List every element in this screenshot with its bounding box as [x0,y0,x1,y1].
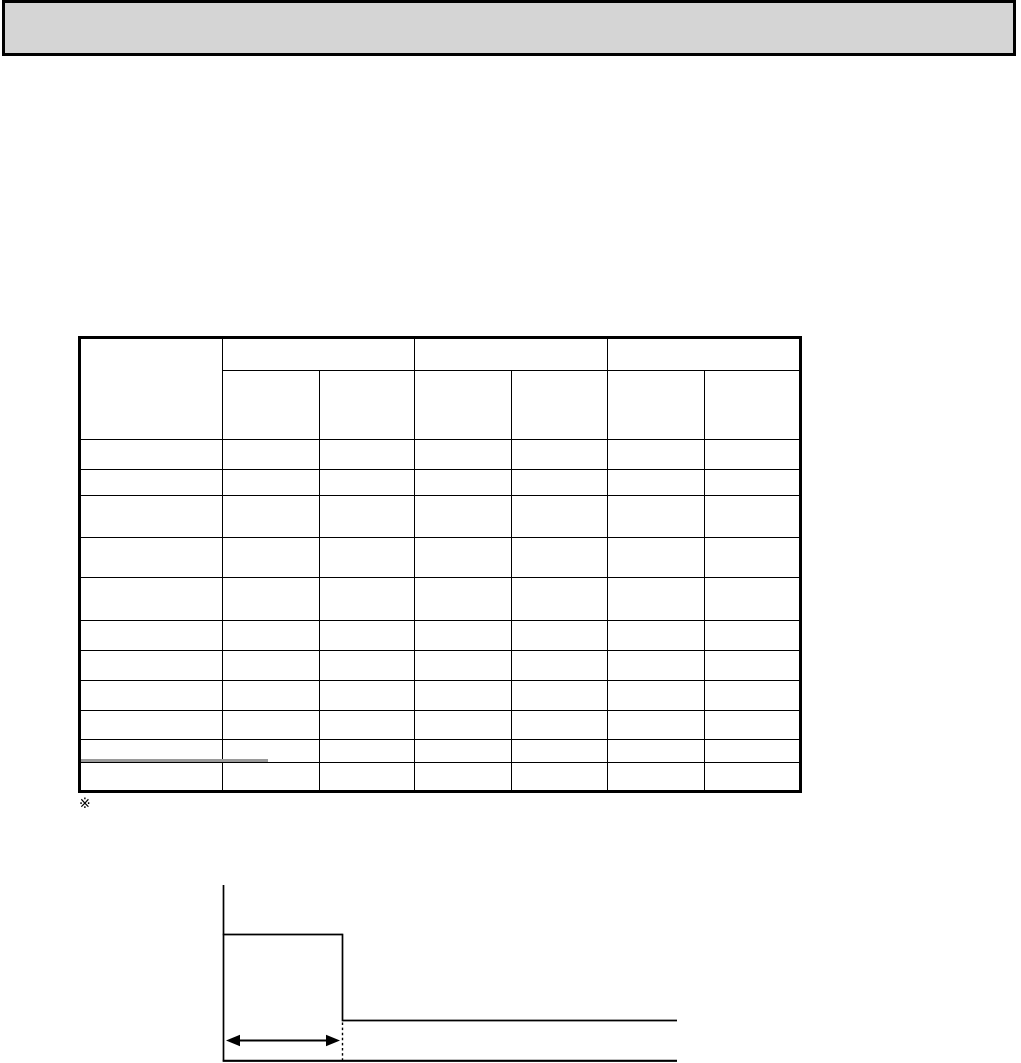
table-cell [80,711,223,740]
table-cell [320,651,415,681]
table-cell [80,496,223,538]
table-cell [80,763,223,792]
table-cell [705,711,801,740]
table-row [80,621,801,651]
table-cell [320,711,415,740]
table-row [80,440,801,470]
table-cell [608,538,705,578]
column-group-header [415,338,608,371]
table-cell [608,578,705,621]
table-cell [223,621,320,651]
table-cell [512,470,608,496]
table-cell [320,621,415,651]
table-cell [415,651,512,681]
column-subheader [415,371,512,440]
table-cell [223,470,320,496]
table-cell [415,470,512,496]
table-cell [512,496,608,538]
table-cell [705,740,801,763]
table-cell [415,621,512,651]
table-cell [223,578,320,621]
table-cell [223,711,320,740]
table-cell [705,651,801,681]
table-cell [512,440,608,470]
footnote-marker: ※ [79,797,91,811]
table-cell [415,496,512,538]
table-cell [512,538,608,578]
table-cell [512,621,608,651]
table-cell [512,578,608,621]
table-cell [512,763,608,792]
table-cell [608,711,705,740]
table-cell [512,711,608,740]
table-cell [608,740,705,763]
table-cell [223,651,320,681]
width-arrow-right-head [326,1035,340,1047]
table-cell [608,651,705,681]
pulse-width-timing-diagram [200,870,700,1063]
table-cell [223,538,320,578]
table-cell [80,681,223,711]
table-cell [415,740,512,763]
table-cell [320,740,415,763]
table-cell [705,538,801,578]
table-cell [415,440,512,470]
table-row [80,681,801,711]
table-cell [320,578,415,621]
table-cell [415,681,512,711]
table-cell [705,621,801,651]
table-row [80,763,801,792]
column-subheader [320,371,415,440]
table-cell [80,470,223,496]
table-cell [223,440,320,470]
table-cell [223,763,320,792]
table-cell [80,440,223,470]
table-cell [223,496,320,538]
table-cell [80,578,223,621]
faded-grid-line [81,759,268,762]
table-cell [80,538,223,578]
table-cell [512,740,608,763]
table-cell [608,470,705,496]
table-cell [415,763,512,792]
column-subheader [705,371,801,440]
table-cell [512,681,608,711]
table-cell [705,763,801,792]
table-row [80,578,801,621]
table-row [80,711,801,740]
table-cell [415,578,512,621]
width-arrow-left-head [226,1035,240,1047]
table-cell [80,651,223,681]
column-subheader [223,371,320,440]
table-cell [320,470,415,496]
table-cell [705,470,801,496]
column-group-header [608,338,801,371]
table-cell [705,440,801,470]
table-cell [320,763,415,792]
table-row [80,651,801,681]
table-cell [415,538,512,578]
table-cell [223,681,320,711]
column-subheader [608,371,705,440]
table-cell [608,496,705,538]
table-row [80,496,801,538]
table-cell [320,538,415,578]
table-cell [512,651,608,681]
table-cell [705,496,801,538]
table-cell [320,681,415,711]
table-cell [705,578,801,621]
table-cell [608,681,705,711]
table-row [80,538,801,578]
page-title-bar [2,0,1016,56]
table-header-group-row [80,338,801,371]
table-cell [608,440,705,470]
table-cell [415,711,512,740]
column-group-header [223,338,415,371]
table-cell [80,621,223,651]
table-cell [320,440,415,470]
table-cell [608,621,705,651]
spec-table [78,336,802,793]
table-cell [705,681,801,711]
spec-table-container [78,336,799,790]
table-row [80,470,801,496]
table-cell [608,763,705,792]
table-corner-cell [80,338,223,440]
table-cell [320,496,415,538]
column-subheader [512,371,608,440]
